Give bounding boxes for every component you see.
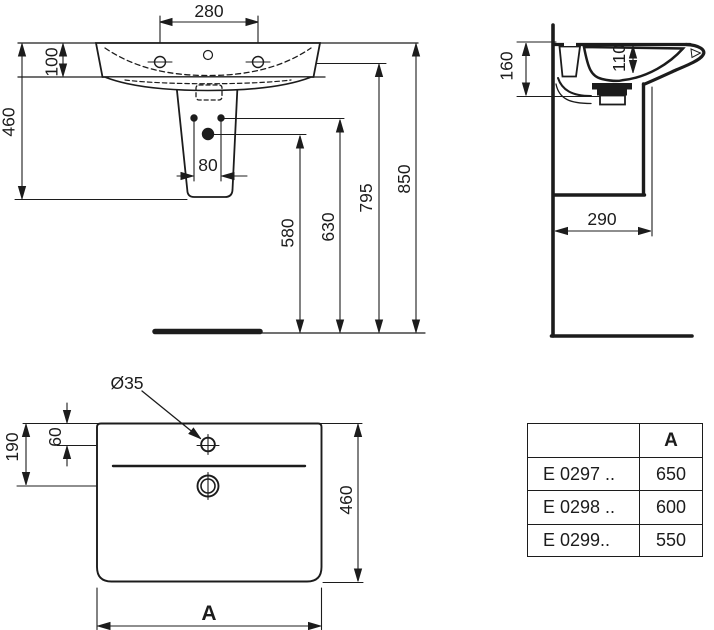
model-size-table: A E 0297 .. 650 E 0298 .. 600 E 0299.. 5… [527,423,703,557]
dim-rim-height: 850 [394,164,414,193]
table-row-value: 550 [639,524,702,556]
dim-pedestal-clearance: 290 [587,209,616,229]
dim-width-label: A [201,602,216,625]
dim-bolt-height: 630 [318,212,338,241]
table-row-model: E 0297 .. [528,457,639,490]
dim-tap-hole-diameter: Ø35 [110,373,143,393]
dim-tap-spacing: 280 [194,1,223,21]
table-header-model [528,424,639,457]
dim-bolt-spacing: 80 [198,155,218,175]
pedestal-bolt-hole-left [191,115,197,121]
dim-bowl-depth: 110 [609,44,629,72]
table-row-value: 650 [639,457,702,490]
side-drain-flange [592,83,632,90]
table-row-model: E 0299.. [528,524,639,556]
technical-drawing-sheet: 280 100 460 80 580 630 795 850 [0,0,714,630]
front-view: 280 100 460 80 580 630 795 850 [0,1,425,333]
top-view: Ø35 60 190 460 A [2,373,363,630]
side-back-deck [560,47,581,77]
dim-drain-height: 580 [278,218,298,247]
dim-front-edge-height: 795 [356,183,376,212]
table-row-value: 600 [639,490,702,524]
top-basin-outline [97,424,322,582]
table-header-a: A [639,424,702,457]
dim-basin-height: 100 [42,47,62,76]
dim-tap-hole-offset: 60 [45,427,65,447]
front-pedestal-outline [177,86,238,197]
table-row-model: E 0298 .. [528,490,639,524]
dim-basin-depth: 460 [336,485,356,514]
dim-unit-height: 460 [0,107,19,136]
dim-drain-offset: 190 [2,432,22,461]
side-view: 160 110 290 [497,25,704,336]
dim-back-depth: 160 [497,51,517,80]
